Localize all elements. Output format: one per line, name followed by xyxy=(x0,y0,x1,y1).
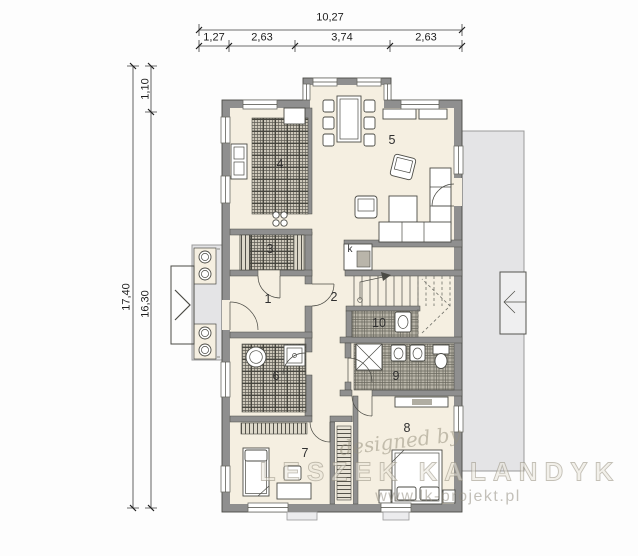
chair xyxy=(364,100,375,112)
pillow xyxy=(245,450,267,461)
washbasin xyxy=(391,345,406,361)
nightstand xyxy=(379,490,391,503)
dim-top-total: 10,27 xyxy=(316,13,344,24)
armchair xyxy=(390,154,417,181)
dim-left-total: 17,40 xyxy=(122,283,133,311)
dim-left-inner: 16,30 xyxy=(141,290,152,318)
sideboard xyxy=(383,109,416,119)
dim-top-seg-2: 2,63 xyxy=(251,33,272,44)
shelf xyxy=(240,235,250,270)
nightstand xyxy=(443,490,455,503)
washbasin xyxy=(395,312,411,332)
dining-set xyxy=(323,96,375,146)
corner-basin xyxy=(246,347,266,367)
dim-top-seg-1: 1,27 xyxy=(203,33,224,44)
room-label-10: 10 xyxy=(372,317,386,330)
bathroom-fixtures xyxy=(354,344,454,390)
kitchen-counter xyxy=(284,108,305,124)
bed xyxy=(243,448,269,496)
room-label-1: 1 xyxy=(265,293,272,306)
room-label-3: 3 xyxy=(267,243,274,256)
room-label-5: 5 xyxy=(389,134,396,147)
dining-table xyxy=(337,96,361,142)
sideboard xyxy=(419,109,447,119)
wardrobe xyxy=(335,422,353,504)
room-label-2: 2 xyxy=(331,291,338,304)
dim-left-offset: 1,10 xyxy=(141,78,152,99)
shower xyxy=(356,344,382,370)
bed xyxy=(392,450,442,504)
fireplace-label: k xyxy=(348,245,353,255)
room-label-4: 4 xyxy=(277,158,284,171)
chair xyxy=(323,117,334,129)
chair xyxy=(323,100,334,112)
shelf xyxy=(294,235,304,270)
desk xyxy=(277,483,311,499)
dim-top-seg-3: 3,74 xyxy=(331,33,352,44)
exterior-steps xyxy=(287,512,409,520)
closet xyxy=(241,423,307,434)
chair xyxy=(323,134,334,146)
floorplan-drawing xyxy=(0,0,638,556)
armchair xyxy=(355,196,377,218)
chair xyxy=(364,117,375,129)
entry-arrow-icon xyxy=(175,290,190,320)
coffee-table xyxy=(389,196,417,222)
room-label-9: 9 xyxy=(393,370,400,383)
pillow xyxy=(397,487,416,500)
pillow xyxy=(420,487,439,500)
floorplan-canvas: 10,27 1,27 2,63 3,74 2,63 17,40 16,30 1,… xyxy=(0,0,638,556)
desk-chair xyxy=(284,466,301,480)
terrace xyxy=(462,131,526,471)
room-label-6: 6 xyxy=(273,370,280,383)
kitchen-sink xyxy=(231,144,247,179)
dim-top-seg-4: 2,63 xyxy=(415,33,436,44)
room-label-7: 7 xyxy=(302,447,309,460)
washbasin xyxy=(410,345,425,361)
room-label-8: 8 xyxy=(404,422,411,435)
chair xyxy=(364,134,375,146)
